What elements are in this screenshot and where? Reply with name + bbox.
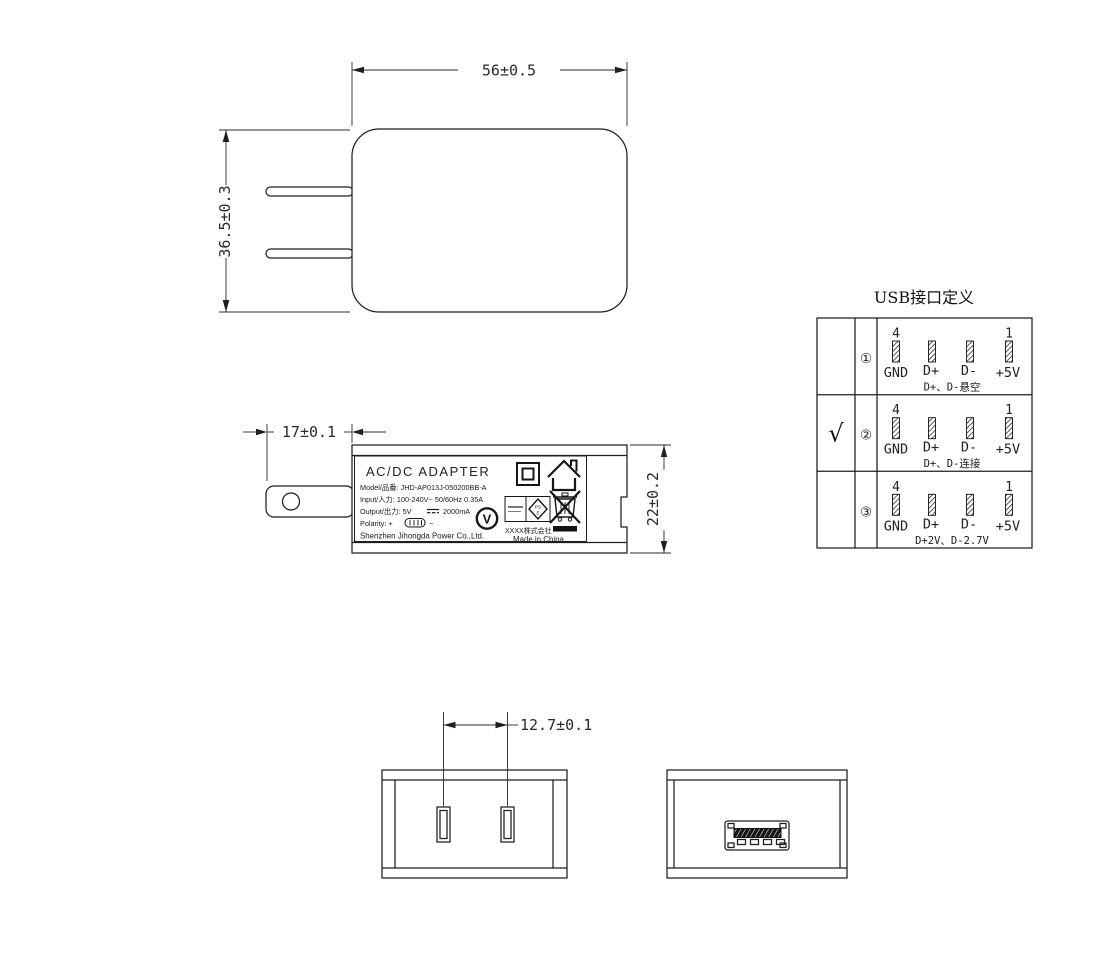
- adapter-drawing-svg: 56±0.5 36.5±0.3: [0, 0, 1100, 953]
- svg-text:PS: PS: [535, 505, 541, 510]
- pin-dplus: [929, 418, 936, 439]
- usb-table-border: [817, 318, 1032, 548]
- pin-dminus: [967, 341, 974, 362]
- dim-depth-arrow-bottom: [661, 541, 667, 553]
- dim-prong-arrow-left: [256, 429, 267, 435]
- svg-text:+5V: +5V: [996, 518, 1020, 534]
- dim-pitch-arrow-left: [444, 722, 456, 728]
- row3-number: ③: [860, 504, 872, 520]
- technical-drawing-page: 56±0.5 36.5±0.3: [0, 0, 1100, 953]
- usb-face-view: [667, 770, 847, 878]
- pin-dplus: [929, 341, 936, 362]
- svg-text:D-: D-: [961, 440, 977, 456]
- plug-face-view: 12.7±0.1: [382, 712, 592, 878]
- dim-prong-text: 17±0.1: [282, 423, 336, 441]
- dim-height: 36.5±0.3: [216, 130, 350, 312]
- pin-gnd: [893, 418, 900, 439]
- dim-width-arrow-left: [352, 67, 364, 73]
- label-title: AC/DC ADAPTER: [366, 464, 490, 479]
- svg-text:E: E: [536, 511, 539, 516]
- side-view: 17±0.1 22±0.2 AC/DC ADAPTER Model/品番: JH…: [243, 423, 671, 553]
- svg-text:4: 4: [892, 480, 900, 495]
- dim-height-arrow-bottom: [223, 300, 230, 312]
- usb-definition-table: USB接口定义 ① 4 1 GND D+ D- +5V D+、D-悬空 √ ② …: [817, 288, 1032, 548]
- dim-depth-arrow-top: [661, 445, 667, 457]
- label-maker: XXXX株式会社: [505, 526, 552, 535]
- svg-text:D-: D-: [961, 516, 977, 532]
- pin-5v: [1006, 494, 1013, 515]
- side-prong: [266, 486, 354, 517]
- dim-height-text: 36.5±0.3: [216, 185, 234, 257]
- label-output: Output/出力: 5V: [360, 507, 412, 516]
- pin-gnd: [893, 494, 900, 515]
- usb-face-body: [667, 770, 847, 878]
- label-polarity: Polarity: +: [360, 519, 393, 528]
- dim-width-arrow-right: [615, 67, 627, 73]
- label-output-current: 2000mA: [443, 507, 470, 516]
- pin-5v: [1006, 418, 1013, 439]
- dim-height-arrow-top: [223, 130, 230, 142]
- front-body: [352, 129, 627, 312]
- svg-text:GND: GND: [884, 365, 908, 381]
- dim-pitch-text: 12.7±0.1: [520, 716, 592, 734]
- row1-note: D+、D-悬空: [924, 381, 981, 394]
- svg-text:D-: D-: [961, 363, 977, 379]
- label-polarity-minus: −: [429, 519, 433, 528]
- dim-width: 56±0.5: [352, 62, 627, 127]
- svg-text:D+: D+: [923, 440, 939, 456]
- plug-face-body: [382, 770, 567, 878]
- label-company: Shenzhen Jihongda Power Co.,Ltd.: [360, 532, 484, 541]
- row3-note: D+2V、D-2.7V: [915, 535, 989, 547]
- front-prong-top: [266, 187, 353, 196]
- label-origin: Made in China: [513, 535, 564, 544]
- svg-text:GND: GND: [884, 518, 908, 534]
- svg-text:GND: GND: [884, 442, 908, 458]
- svg-text:V: V: [483, 512, 492, 527]
- usb-tongue: [734, 829, 781, 838]
- svg-text:1: 1: [1005, 403, 1013, 418]
- label-input: Input/入力: 100-240V~ 50/60Hz 0.35A: [360, 495, 483, 504]
- usb-table-row-3: ③ 4 1 GND D+ D- +5V D+2V、D-2.7V: [860, 480, 1020, 547]
- dim-prong-arrow-right: [352, 429, 363, 435]
- svg-text:+5V: +5V: [996, 365, 1020, 381]
- usb-table-row-2: √ ② 4 1 GND D+ D- +5V D+、D-连接: [828, 403, 1020, 470]
- svg-text:4: 4: [892, 403, 900, 418]
- svg-text:D+: D+: [923, 363, 939, 379]
- usb-table-title: USB接口定义: [874, 288, 974, 307]
- svg-text:1: 1: [1005, 327, 1013, 342]
- row2-checkmark: √: [828, 420, 844, 448]
- dim-depth: 22±0.2: [630, 445, 671, 553]
- row1-number: ①: [860, 351, 872, 367]
- weee-bar-icon: [553, 526, 577, 532]
- pin-5v: [1006, 341, 1013, 362]
- svg-text:4: 4: [892, 327, 900, 342]
- dim-depth-text: 22±0.2: [644, 472, 662, 526]
- front-prong-bottom: [266, 249, 353, 258]
- svg-text:1: 1: [1005, 480, 1013, 495]
- pin-dplus: [929, 494, 936, 515]
- pin-dminus: [967, 418, 974, 439]
- label-model: Model/品番: JHD-AP013J-050200BB-A: [360, 483, 487, 492]
- pin-dminus: [967, 494, 974, 515]
- dim-pitch-arrow-right: [496, 722, 508, 728]
- row2-note: D+、D-连接: [924, 457, 981, 470]
- usb-table-row-1: ① 4 1 GND D+ D- +5V D+、D-悬空: [860, 327, 1020, 394]
- row2-number: ②: [860, 428, 872, 444]
- pin-gnd: [893, 341, 900, 362]
- svg-text:D+: D+: [923, 516, 939, 532]
- front-view: 56±0.5 36.5±0.3: [216, 62, 627, 313]
- svg-text:+5V: +5V: [996, 442, 1020, 458]
- dim-width-text: 56±0.5: [482, 62, 536, 80]
